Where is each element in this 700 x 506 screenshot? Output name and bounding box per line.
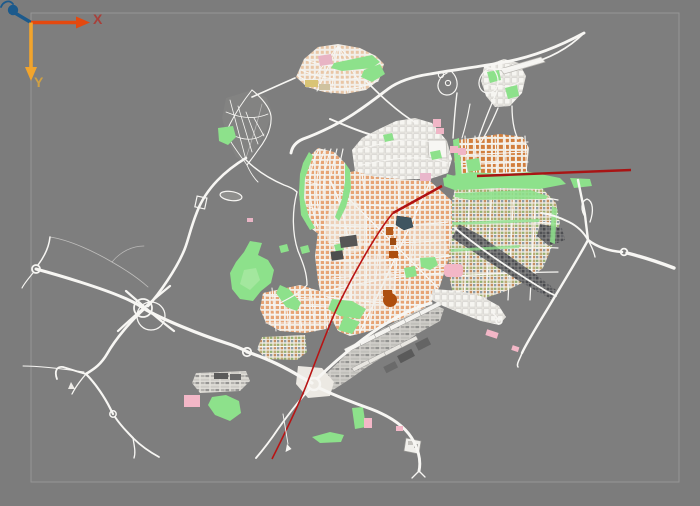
svg-text:Y: Y bbox=[34, 74, 44, 90]
svg-text:X: X bbox=[93, 11, 103, 27]
